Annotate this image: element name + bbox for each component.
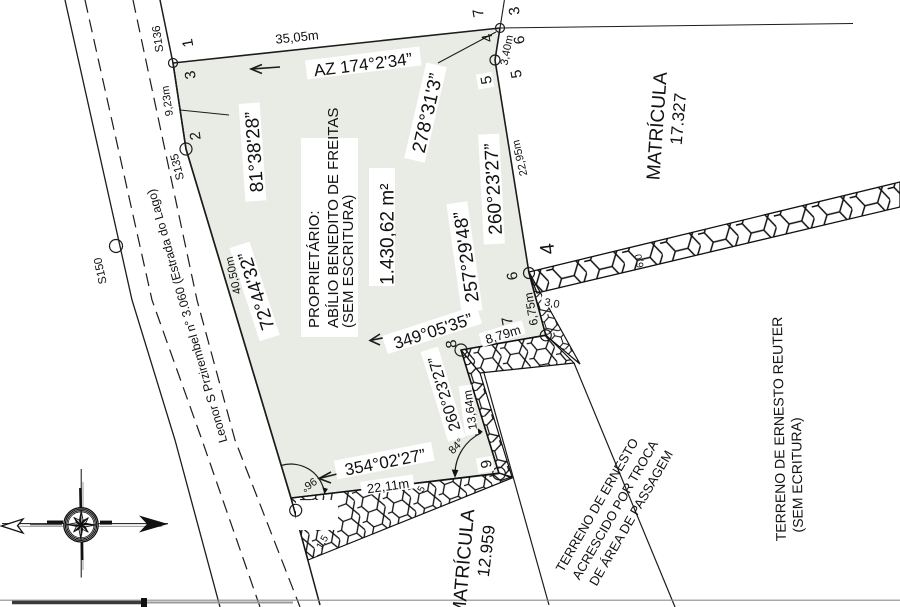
svg-text:TERRENO DE ERNESTO REUTER: TERRENO DE ERNESTO REUTER bbox=[769, 317, 789, 542]
svg-text:7: 7 bbox=[470, 7, 488, 18]
svg-text:5: 5 bbox=[508, 68, 526, 79]
svg-text:1.430,62 m²: 1.430,62 m² bbox=[378, 184, 399, 285]
svg-text:17.327: 17.327 bbox=[667, 92, 690, 145]
svg-text:S135: S135 bbox=[169, 152, 187, 181]
svg-text:35,05m: 35,05m bbox=[275, 27, 320, 46]
svg-text:3: 3 bbox=[506, 5, 524, 16]
svg-text:(SEM ECRITURA): (SEM ECRITURA) bbox=[788, 417, 806, 532]
svg-text:(SEM ESCRITURA): (SEM ESCRITURA) bbox=[340, 195, 357, 328]
svg-text:9,23m: 9,23m bbox=[160, 85, 176, 117]
svg-text:4: 4 bbox=[536, 242, 559, 256]
svg-text:3,40m: 3,40m bbox=[498, 34, 516, 66]
svg-text:PROPRIETÁRIO:: PROPRIETÁRIO: bbox=[306, 210, 323, 328]
svg-text:S150: S150 bbox=[92, 256, 109, 285]
svg-text:12.959: 12.959 bbox=[474, 524, 499, 578]
svg-text:MATRÍCULA: MATRÍCULA bbox=[449, 508, 479, 607]
svg-text:S136: S136 bbox=[151, 25, 167, 53]
svg-text:1: 1 bbox=[179, 37, 197, 48]
